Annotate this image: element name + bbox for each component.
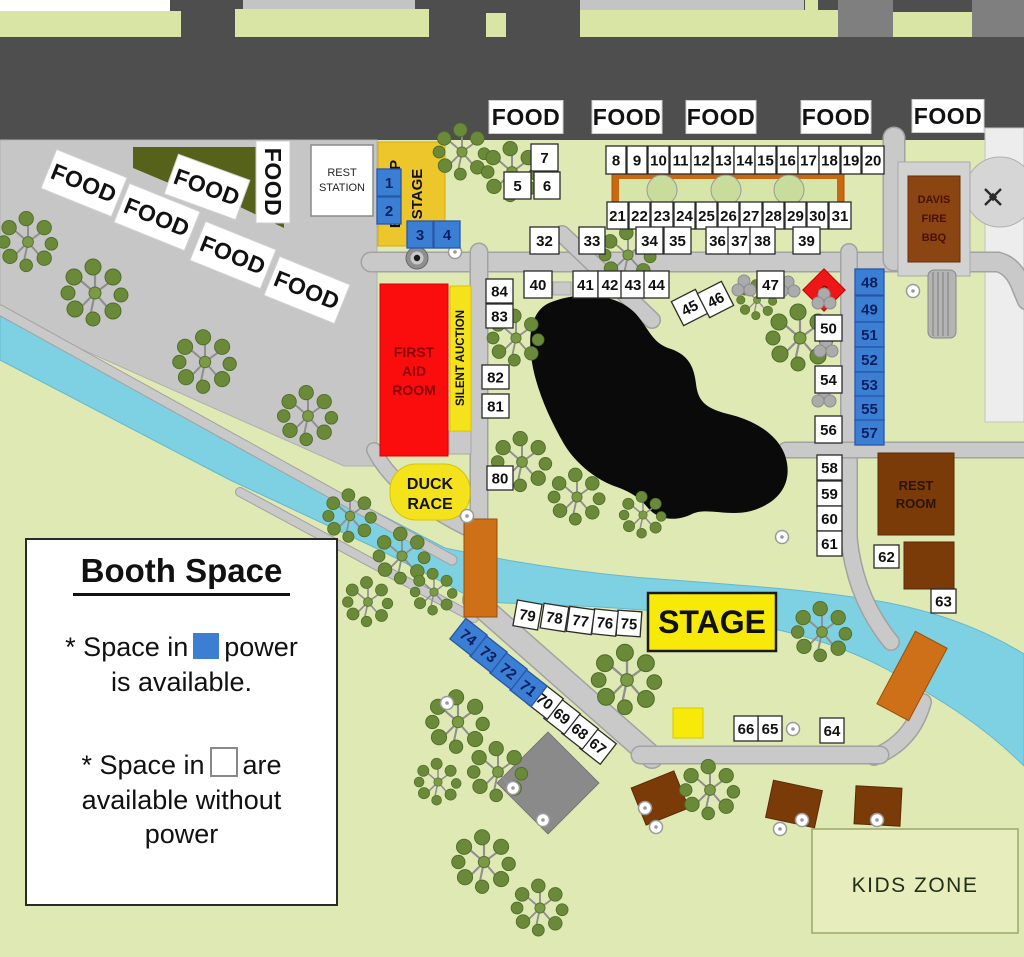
booth-30: 30	[807, 202, 828, 229]
svg-text:44: 44	[648, 277, 665, 294]
svg-text:47: 47	[762, 277, 779, 294]
booth-37: 37	[728, 227, 751, 254]
booth-76: 76	[592, 609, 618, 636]
stage-label: STAGE	[658, 604, 766, 640]
booth-84: 84	[486, 279, 513, 303]
svg-text:61: 61	[821, 536, 838, 553]
svg-text:40: 40	[530, 277, 547, 294]
booth-17: 17	[798, 146, 819, 174]
svg-text:60: 60	[821, 511, 838, 528]
svg-text:16: 16	[779, 153, 796, 170]
svg-text:FOOD: FOOD	[260, 148, 286, 216]
svg-text:FIRE: FIRE	[921, 213, 946, 225]
svg-text:3: 3	[416, 227, 424, 244]
svg-text:65: 65	[762, 721, 779, 738]
booth-40: 40	[524, 271, 552, 298]
rest-room-label: REST	[899, 478, 934, 493]
svg-text:83: 83	[491, 309, 508, 326]
booth-64: 64	[820, 718, 844, 743]
svg-text:58: 58	[821, 460, 838, 477]
booth-15: 15	[755, 146, 776, 174]
booth-47: 47	[757, 271, 784, 298]
booth-39: 39	[793, 227, 820, 254]
svg-text:19: 19	[843, 153, 860, 170]
booth-22: 22	[629, 202, 650, 229]
svg-text:RACE: RACE	[407, 496, 453, 513]
legend-title: Booth Space	[73, 552, 291, 596]
svg-text:59: 59	[821, 486, 838, 503]
booth-24: 24	[674, 202, 695, 229]
speaker-icon	[406, 247, 428, 269]
svg-text:48: 48	[861, 275, 878, 292]
festival-map: REST STATION BACK UP STAGE FIRST AID ROO…	[0, 0, 1024, 957]
booth-12: 12	[691, 146, 712, 174]
booth-65: 65	[758, 716, 782, 741]
svg-text:39: 39	[798, 233, 815, 250]
booth-83: 83	[486, 304, 513, 328]
rest-station-label: REST	[327, 167, 357, 179]
svg-text:66: 66	[738, 721, 755, 738]
kids-zone: KIDS ZONE	[812, 829, 1018, 933]
svg-text:28: 28	[765, 208, 782, 225]
silent-auction-label: SILENT AUCTION	[455, 310, 467, 406]
duck-race-label: DUCK	[407, 476, 454, 493]
svg-text:37: 37	[731, 233, 748, 250]
booth-29: 29	[785, 202, 806, 229]
booth-79: 79	[513, 600, 542, 630]
first-aid-room: FIRST AID ROOM	[380, 284, 448, 456]
svg-text:51: 51	[861, 327, 878, 344]
booth-75: 75	[616, 610, 642, 637]
booth-82: 82	[482, 365, 509, 389]
booth-41: 41	[573, 271, 598, 298]
utility-marker-icon	[776, 531, 789, 544]
svg-text:BBQ: BBQ	[922, 232, 947, 244]
svg-text:29: 29	[787, 208, 804, 225]
booth-38: 38	[750, 227, 775, 254]
svg-text:22: 22	[631, 208, 648, 225]
booth-62: 62	[874, 545, 899, 568]
no-power-swatch	[210, 747, 238, 777]
legend-note-no-power: * Space inare available without power	[27, 747, 336, 852]
svg-text:81: 81	[487, 399, 504, 416]
svg-text:10: 10	[650, 153, 667, 170]
svg-text:27: 27	[743, 208, 760, 225]
svg-text:32: 32	[536, 233, 553, 250]
utility-marker-icon	[650, 821, 663, 834]
booth-20: 20	[862, 146, 884, 174]
svg-text:18: 18	[821, 153, 838, 170]
booth-18: 18	[819, 146, 840, 174]
svg-text:4: 4	[443, 227, 452, 244]
svg-text:75: 75	[620, 615, 638, 633]
svg-text:FOOD: FOOD	[593, 104, 661, 130]
svg-text:63: 63	[935, 594, 952, 611]
booth-35: 35	[664, 227, 691, 254]
booth-66: 66	[734, 716, 758, 741]
food-sign: FOOD	[912, 100, 984, 133]
water-tank	[928, 270, 956, 338]
small-yellow-booth	[673, 708, 703, 738]
svg-text:ROOM: ROOM	[392, 382, 436, 398]
booth-78: 78	[540, 603, 569, 632]
booth-13: 13	[713, 146, 734, 174]
utility-marker-icon	[461, 510, 474, 523]
first-aid-label: FIRST	[394, 344, 435, 360]
davis-label: DAVIS	[918, 194, 951, 206]
booth-32: 32	[530, 227, 559, 254]
svg-text:5: 5	[513, 178, 521, 195]
svg-text:21: 21	[609, 208, 626, 225]
booth-63: 63	[931, 589, 956, 613]
booth-43: 43	[621, 271, 645, 298]
booth-27: 27	[740, 202, 762, 229]
booth-59: 59	[817, 481, 842, 506]
booth-81: 81	[482, 394, 509, 418]
booth-4: 4	[434, 221, 460, 248]
svg-text:57: 57	[861, 425, 878, 442]
booth-19: 19	[841, 146, 861, 174]
booth-25: 25	[696, 202, 717, 229]
power-swatch	[193, 633, 219, 659]
booth-14: 14	[734, 146, 755, 174]
svg-text:25: 25	[698, 208, 715, 225]
svg-text:1: 1	[385, 175, 393, 192]
booth-21: 21	[607, 202, 628, 229]
booth-53: 53	[855, 372, 884, 397]
svg-text:33: 33	[584, 233, 601, 250]
rest-room: REST ROOM	[878, 453, 954, 535]
kids-zone-label: KIDS ZONE	[852, 874, 979, 897]
svg-text:ROOM: ROOM	[896, 496, 936, 511]
svg-text:31: 31	[832, 208, 849, 225]
legend-note-power: * Space inpower is available.	[27, 630, 336, 699]
food-sign: FOOD	[592, 101, 662, 134]
svg-text:AID: AID	[402, 363, 426, 379]
svg-text:64: 64	[824, 723, 841, 740]
svg-text:FOOD: FOOD	[914, 103, 982, 129]
booth-50: 50	[815, 315, 842, 341]
booth-8: 8	[606, 146, 626, 174]
svg-text:43: 43	[625, 277, 642, 294]
svg-text:77: 77	[571, 612, 590, 631]
duck-race: DUCK RACE	[390, 464, 470, 520]
svg-text:50: 50	[820, 321, 837, 338]
svg-text:79: 79	[518, 606, 537, 626]
booth-31: 31	[829, 202, 851, 229]
booth-52: 52	[855, 347, 884, 372]
svg-text:STAGE: STAGE	[409, 169, 426, 220]
booth-58: 58	[817, 455, 842, 480]
svg-text:26: 26	[720, 208, 737, 225]
utility-marker-icon	[441, 697, 454, 710]
svg-text:34: 34	[641, 233, 658, 250]
stage: STAGE	[648, 593, 776, 651]
booth-55: 55	[855, 396, 884, 421]
booth-42: 42	[598, 271, 622, 298]
svg-text:6: 6	[543, 178, 551, 195]
svg-text:84: 84	[491, 284, 508, 301]
legend-booth-space: Booth Space * Space inpower is available…	[25, 538, 338, 906]
svg-text:52: 52	[861, 352, 878, 369]
booth-49: 49	[855, 296, 884, 322]
utility-marker-icon	[507, 782, 520, 795]
booth-51: 51	[855, 322, 884, 347]
svg-text:17: 17	[800, 153, 817, 170]
booth-28: 28	[763, 202, 784, 229]
booth-80: 80	[487, 466, 513, 490]
svg-text:49: 49	[861, 302, 878, 319]
svg-text:80: 80	[492, 471, 509, 488]
booth-3: 3	[407, 221, 433, 248]
svg-text:55: 55	[861, 401, 878, 418]
svg-text:11: 11	[673, 153, 689, 170]
food-sign: FOOD	[801, 101, 871, 134]
storage-shed	[904, 542, 954, 589]
booth-57: 57	[855, 420, 884, 445]
svg-text:36: 36	[709, 233, 726, 250]
svg-text:76: 76	[596, 614, 614, 633]
svg-text:9: 9	[633, 153, 641, 170]
booth-26: 26	[718, 202, 739, 229]
svg-text:78: 78	[545, 609, 564, 628]
booth-77: 77	[566, 606, 594, 634]
booth-54: 54	[815, 366, 842, 393]
booth-9: 9	[627, 146, 647, 174]
silent-auction: SILENT AUCTION	[450, 286, 471, 431]
svg-text:35: 35	[669, 233, 686, 250]
utility-marker-icon	[774, 823, 787, 836]
food-sign: FOOD	[686, 101, 756, 134]
svg-text:14: 14	[736, 153, 753, 170]
svg-text:STATION: STATION	[319, 182, 365, 194]
bridge-west	[464, 519, 497, 617]
utility-marker-icon	[639, 802, 652, 815]
svg-text:42: 42	[602, 277, 619, 294]
svg-text:30: 30	[809, 208, 826, 225]
booth-33: 33	[579, 227, 605, 254]
booth-10: 10	[648, 146, 669, 174]
booth-16: 16	[777, 146, 798, 174]
booth-1: 1	[377, 169, 401, 196]
booth-44: 44	[644, 271, 669, 298]
booth-11: 11	[670, 146, 691, 174]
svg-text:56: 56	[820, 422, 837, 439]
booth-34: 34	[636, 227, 663, 254]
svg-text:82: 82	[487, 370, 504, 387]
rest-station: REST STATION	[311, 145, 373, 216]
booth-48: 48	[855, 269, 884, 295]
svg-text:53: 53	[861, 377, 878, 394]
utility-marker-icon	[871, 814, 884, 827]
booth-61: 61	[817, 531, 842, 556]
svg-text:15: 15	[757, 153, 774, 170]
booth-5: 5	[504, 172, 531, 199]
svg-text:54: 54	[820, 372, 837, 389]
food-sign: FOOD	[256, 141, 290, 223]
booth-7: 7	[531, 144, 558, 171]
svg-text:24: 24	[676, 208, 693, 225]
booth-60: 60	[817, 506, 842, 531]
food-sign: FOOD	[489, 101, 563, 134]
svg-text:62: 62	[878, 549, 895, 566]
svg-text:12: 12	[693, 153, 710, 170]
svg-text:23: 23	[654, 208, 671, 225]
booth-2: 2	[377, 197, 401, 224]
svg-text:7: 7	[540, 150, 548, 167]
utility-marker-icon	[907, 285, 920, 298]
svg-text:FOOD: FOOD	[687, 104, 755, 130]
svg-text:FOOD: FOOD	[492, 104, 560, 130]
svg-text:8: 8	[612, 153, 620, 170]
svg-text:20: 20	[865, 153, 882, 170]
svg-text:13: 13	[715, 153, 732, 170]
svg-text:2: 2	[385, 203, 393, 220]
booth-56: 56	[815, 416, 842, 443]
utility-marker-icon	[796, 814, 809, 827]
davis-fire-bbq: DAVIS FIRE BBQ	[898, 162, 970, 276]
svg-text:38: 38	[754, 233, 771, 250]
utility-marker-icon	[787, 723, 800, 736]
utility-marker-icon	[537, 814, 550, 827]
booth-36: 36	[706, 227, 729, 254]
svg-text:FOOD: FOOD	[802, 104, 870, 130]
booth-6: 6	[534, 172, 560, 199]
svg-text:41: 41	[577, 277, 594, 294]
booth-23: 23	[651, 202, 673, 229]
